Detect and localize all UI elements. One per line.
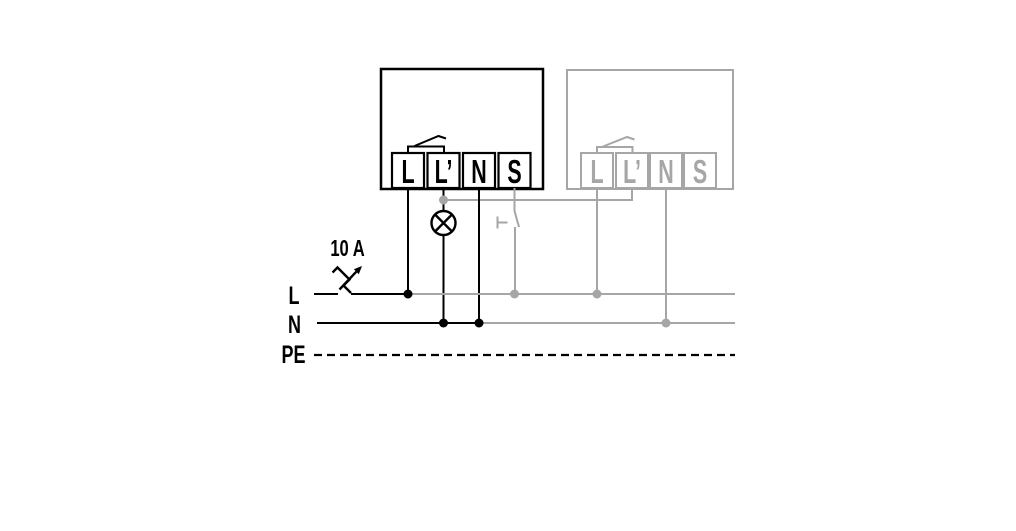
terminal-s-ghost-label: S — [693, 153, 707, 190]
lamp-cross — [435, 215, 451, 231]
terminal-n-label: N — [471, 153, 486, 190]
breaker-arrow-shaft — [340, 272, 357, 290]
terminal-lprime-label: L’ — [435, 153, 453, 190]
push-button-icon — [498, 211, 520, 229]
push-button-blade — [515, 211, 520, 227]
wiring-diagram: L L’ N S L L’ N S — [0, 0, 1016, 531]
device-ghost: L L’ N S — [567, 70, 733, 190]
junction-n-active — [475, 319, 484, 328]
terminal-l-label: L — [401, 153, 414, 190]
wires-active — [408, 188, 479, 323]
junction-lprime-branch — [439, 196, 448, 205]
junction-n-ghost — [662, 319, 671, 328]
push-button-actuator — [498, 217, 508, 229]
device-active: L L’ N S — [381, 69, 543, 190]
junction-n-lamp — [439, 319, 448, 328]
relay-contact-icon-ghost — [597, 137, 635, 153]
terminal-l-ghost-label: L — [590, 153, 603, 190]
junction-l-button — [510, 290, 519, 299]
wires-ghost — [444, 188, 667, 323]
junction-l-ghost — [593, 290, 602, 299]
relay-contact-blade — [415, 136, 447, 146]
bus-label-pe: PE — [281, 340, 305, 369]
bus-label-l: L — [289, 281, 300, 310]
fuse-rating-label: 10 A — [330, 236, 364, 261]
relay-contact-blade-ghost — [603, 137, 635, 147]
bus-label-n: N — [288, 310, 301, 339]
lamp-icon — [432, 211, 456, 235]
junction-l-active — [404, 290, 413, 299]
terminal-n-ghost-label: N — [658, 153, 673, 190]
relay-contact-icon — [408, 136, 446, 153]
terminal-lprime-ghost-label: L’ — [623, 153, 641, 190]
terminal-s-label: S — [507, 153, 521, 190]
wiring-diagram-canvas: L L’ N S L L’ N S — [0, 0, 1016, 531]
circuit-breaker-icon: 10 A — [330, 236, 364, 293]
